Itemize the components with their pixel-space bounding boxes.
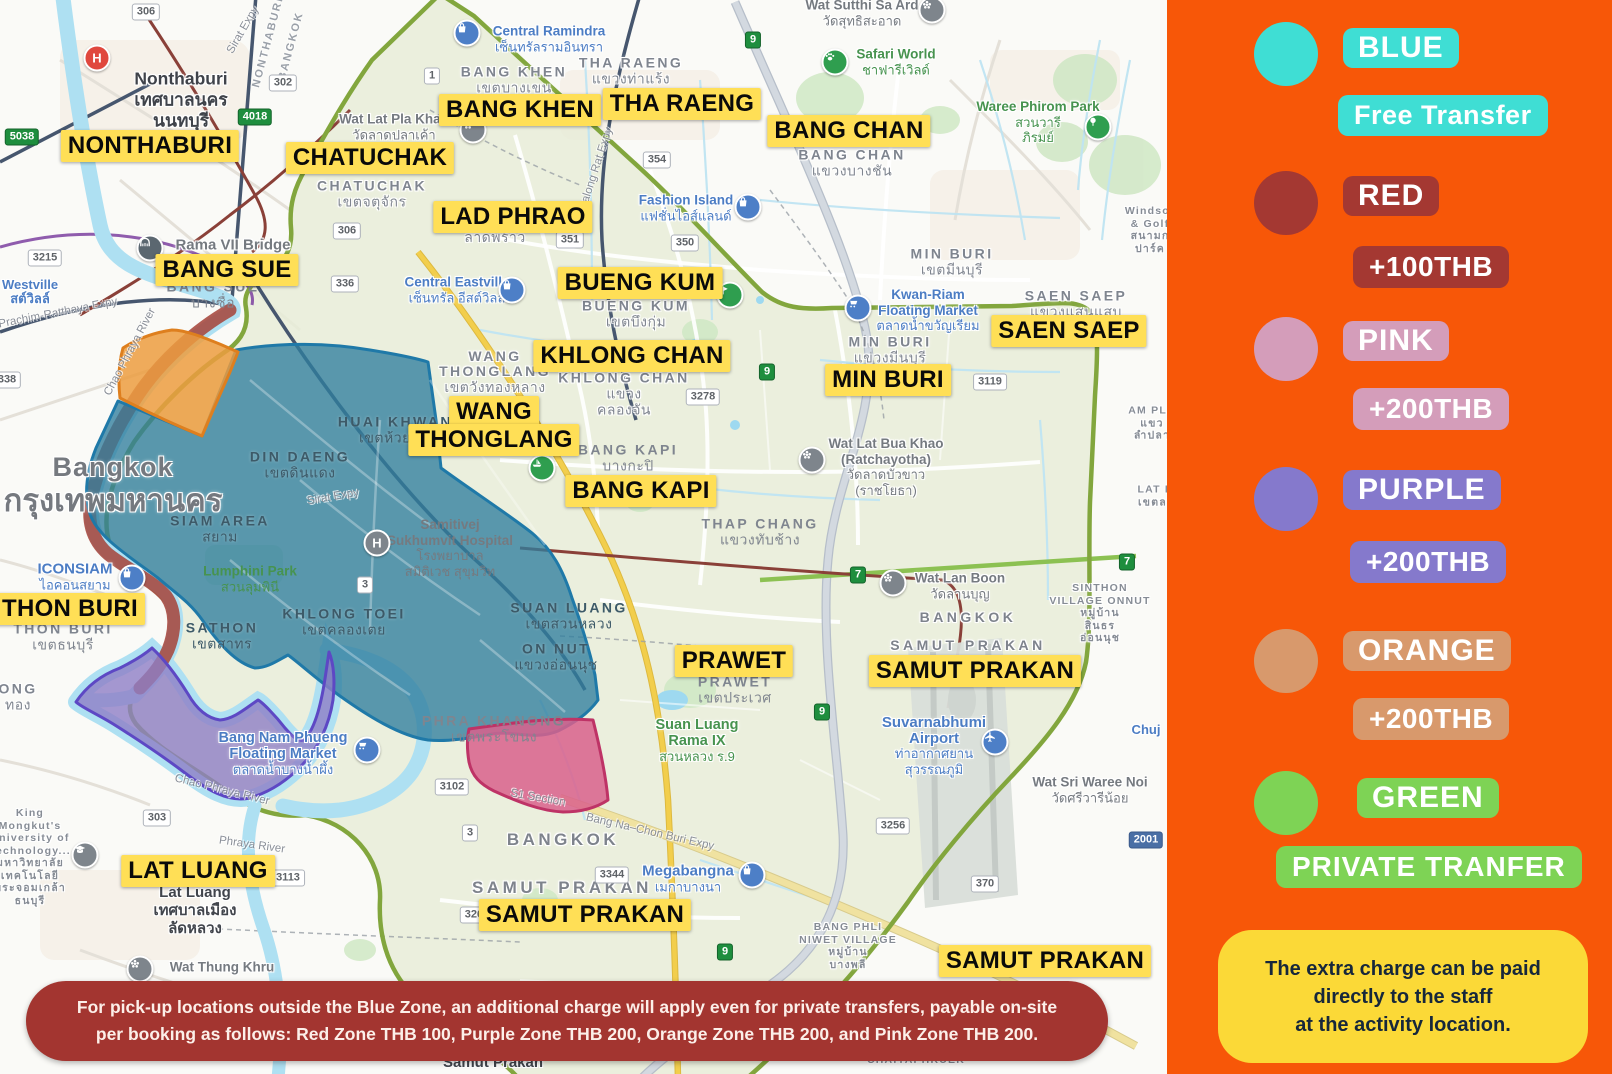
village-label-bang-phli: BANG PHLINIWET VILLAGEหมู่บ้านบางพลี	[799, 921, 897, 971]
park-tree-icon	[1085, 114, 1112, 141]
route-badge: 3215	[28, 250, 62, 267]
route-badge: 2001	[1129, 832, 1163, 849]
legend-swatch-blue	[1254, 22, 1318, 86]
temple-icon	[127, 956, 154, 983]
boat-icon	[529, 455, 556, 482]
temple-icon	[799, 447, 826, 474]
route-badge: 9	[717, 944, 733, 961]
zone-label: SAMUT PRAKAN	[939, 945, 1151, 977]
route-badge: 3119	[973, 374, 1007, 391]
route-badge: 9	[745, 32, 761, 49]
route-badge: 336	[331, 276, 359, 293]
temple-icon	[880, 570, 907, 597]
extra-charge-note: The extra charge can be paid directly to…	[1218, 930, 1588, 1063]
zone-label: SAMUT PRAKAN	[869, 655, 1081, 687]
zone-label: KHLONG CHAN	[533, 340, 730, 372]
poi-label: Wat Sutthi Sa Ardวัดสุทธิสะอาด	[806, 0, 919, 29]
legend-fee-orange: +200THB	[1353, 698, 1509, 740]
route-badge: 3	[357, 577, 373, 594]
route-badge: 306	[333, 223, 361, 240]
poi-label: Waree Phirom Parkสวนวารีภิรมย์	[976, 99, 1099, 146]
district-label: BANG CHANแขวงบางชัน	[798, 148, 905, 179]
shopping-bag-icon	[119, 565, 146, 592]
poi-label: Bang Nam PhuengFloating Marketตลาดน้ำบาง…	[219, 731, 348, 778]
university-icon	[72, 842, 99, 869]
poi-label: Rama VII Bridge	[175, 237, 290, 253]
route-badge: 9	[759, 364, 775, 381]
zone-label: BANG KAPI	[565, 475, 716, 507]
district-label: KHLONG TOEIเขตคลองเตย	[282, 607, 405, 638]
poi-label: ICONSIAMไอคอนสยาม	[38, 562, 113, 593]
market-cart-icon	[845, 295, 872, 322]
route-badge: 302	[269, 75, 297, 92]
route-badge: 3102	[435, 779, 469, 796]
hospital-icon: H	[364, 530, 391, 557]
route-badge: 354	[643, 152, 671, 169]
poi-label: Lumphini Parkสวนลุมพินี	[203, 564, 297, 595]
district-label-partial: AM PLAแขวลำปลา	[1128, 404, 1167, 442]
route-badge: 9	[814, 704, 830, 721]
district-label-khlong-chan: KHLONG CHANแขวงคลองจัน	[558, 371, 689, 418]
zone-label: BANG KHEN	[439, 94, 601, 126]
legend-name-purple: PURPLE	[1343, 470, 1501, 510]
route-badge: 351	[556, 232, 584, 249]
province-label: BANGKOK	[507, 830, 619, 850]
legend-fee-blue: Free Transfer	[1338, 95, 1548, 136]
district-label: THAP CHANGแขวงทับช้าง	[701, 517, 818, 548]
district-label: THA RAENGแขวงท่าแร้ง	[579, 56, 683, 87]
town-label-nonthaburi: Nonthaburiเทศบาลนครนนทบุรี	[134, 69, 227, 132]
district-label: BUENG KUMเขตบึงกุ่ม	[582, 299, 690, 330]
legend-swatch-green	[1254, 771, 1318, 835]
legend-fee-purple: +200THB	[1350, 541, 1506, 583]
legend-panel: BLUE Free Transfer RED +100THB PINK +200…	[1167, 0, 1612, 1074]
zone-label: MIN BURI	[825, 364, 951, 396]
zone-label: BANG CHAN	[767, 115, 930, 147]
legend-name-green: GREEN	[1357, 778, 1499, 818]
poi-label-windsor-golf: Windsor& Golfสนามกปาร์ค	[1125, 205, 1167, 255]
zone-label: SAEN SAEP	[991, 315, 1146, 347]
district-label: BANG KAPIบางกะปิ	[578, 443, 678, 474]
legend-fee-red: +100THB	[1353, 246, 1509, 288]
bangkok-transfer-zone-infographic: Chao Phraya River Chao Phraya River Phra…	[0, 0, 1612, 1074]
district-label: SUAN LUANGเขตสวนหลวง	[510, 601, 627, 632]
province-label: SAMUT PRAKAN	[890, 637, 1046, 653]
route-badge: 303	[143, 810, 171, 827]
market-cart-icon	[354, 737, 381, 764]
district-label: CHATUCHAKเขตจตุจักร	[317, 179, 427, 210]
legend-swatch-purple	[1254, 467, 1318, 531]
legend-swatch-pink	[1254, 317, 1318, 381]
poi-label-partial: Chuj	[1132, 723, 1161, 737]
surcharge-banner: For pick-up locations outside the Blue Z…	[26, 981, 1108, 1061]
poi-label: Fashion Islandแฟชั่นไอส์แลนด์	[639, 193, 734, 224]
route-badge: 1	[424, 68, 440, 85]
route-badge: 3	[462, 825, 478, 842]
poi-label: Wat Lat Bua Khao(Ratchayotha)วัดลาดบัวขา…	[828, 436, 943, 498]
district-label: DIN DAENGเขตดินแดง	[250, 450, 350, 481]
shopping-bag-icon	[735, 194, 762, 221]
district-label: MIN BURIเขตมีนบุรี	[911, 247, 994, 278]
route-badge: 5038	[5, 129, 39, 146]
poi-label: Central Eastvilleเซ็นทรัล อีสต์วิลล์	[404, 275, 509, 306]
poi-label: Suan LuangRama IXสวนหลวง ร.9	[656, 718, 739, 765]
zone-label: SAMUT PRAKAN	[479, 899, 691, 931]
district-label-partial: LAT KRเขตลาด	[1138, 484, 1167, 509]
poi-label-westville: Westvilleสต์วิลล์	[2, 278, 58, 306]
legend-swatch-red	[1254, 171, 1318, 235]
district-label-partial: ONGทอง	[0, 682, 38, 713]
map-canvas: Chao Phraya River Chao Phraya River Phra…	[0, 0, 1167, 1074]
district-label: THON BURIเขตธนบุรี	[13, 622, 112, 653]
poi-label: Wat Sri Waree Noiวัดศรีวารีน้อย	[1032, 775, 1147, 806]
hospital-icon: H	[84, 45, 111, 72]
district-label: BANG KHENเขตบางเขน	[461, 65, 567, 96]
shopping-bag-icon	[454, 20, 481, 47]
legend-fee-pink: +200THB	[1353, 388, 1509, 430]
route-badge: 3113	[271, 870, 305, 887]
town-label-lat-luang: Lat Luangเทศบาลเมืองลัดหลวง	[153, 884, 236, 938]
poi-label: Central Ramindraเซ็นทรัลรามอินทรา	[493, 24, 606, 55]
legend-name-pink: PINK	[1343, 321, 1449, 361]
legend-name-orange: ORANGE	[1343, 631, 1511, 671]
route-badge: 306	[132, 4, 160, 21]
zone-label: THA RAENG	[603, 88, 761, 120]
route-badge: 4018	[238, 109, 272, 126]
shopping-bag-icon	[739, 862, 766, 889]
route-badge: 370	[971, 876, 999, 893]
shopping-bag-icon	[499, 277, 526, 304]
paw-icon	[822, 49, 849, 76]
province-label: BANGKOK	[920, 609, 1017, 625]
zone-label: PRAWET	[675, 645, 793, 677]
route-badge: 3344	[595, 867, 629, 884]
route-badge: 7	[850, 567, 866, 584]
route-badge: 7	[1119, 554, 1135, 571]
zone-label: BANG SUE	[155, 254, 298, 286]
legend-name-blue: BLUE	[1343, 28, 1459, 68]
route-badge: 338	[0, 372, 21, 389]
district-label: SATHONเขตสาทร	[186, 621, 258, 652]
district-label: MIN BURIแขวงมีนบุรี	[849, 335, 932, 366]
airport-plane-icon	[982, 729, 1009, 756]
legend-name-red: RED	[1343, 176, 1439, 216]
zone-label: THONGLANG	[408, 424, 579, 456]
district-label: SIAM AREAสยาม	[170, 514, 270, 545]
poi-label: SamitivejSukhumvit Hospitalโรงพยาบาลสมิต…	[387, 517, 513, 579]
poi-label: Wat Lan Boonวัดลานบุญ	[915, 571, 1005, 602]
district-label: PRAWETเขตประเวศ	[698, 675, 772, 706]
district-label: PHRA KHANONGเขตพระโขนง	[422, 714, 566, 745]
zone-label: LAD PHRAO	[433, 201, 592, 233]
route-badge: 350	[671, 235, 699, 252]
poi-label: Safari Worldชาฟารีเวิลด์	[856, 47, 935, 78]
route-badge: 3256	[876, 818, 910, 835]
village-label-sinthon: SINTHONVILLAGE ONNUTหมู่บ้านสินธรอ่อนนุช	[1049, 582, 1150, 645]
legend-swatch-orange	[1254, 629, 1318, 693]
poi-label: Wat Lat Pla Khaoวัดลาดปลาเค้า	[339, 112, 449, 143]
zone-label: NONTHABURI	[61, 130, 239, 162]
legend-fee-green: PRIVATE TRANFER	[1276, 846, 1582, 888]
poi-label: Wat Thung Khru	[170, 959, 274, 975]
city-label-bangkok: Bangkokกรุงเทพมหานคร	[4, 451, 223, 517]
zone-label: CHATUCHAK	[286, 142, 454, 174]
poi-label: Megabangnaเมกาบางนา	[642, 864, 734, 895]
district-label: ON NUTแขวงอ่อนนุช	[514, 642, 597, 673]
poi-label: Kwan-RiamFloating Marketตลาดน้ำขวัญเรียม	[876, 287, 979, 334]
zone-label: LAT LUANG	[121, 855, 275, 887]
zone-label: THON BURI	[0, 593, 145, 625]
zone-label: BUENG KUM	[558, 267, 723, 299]
poi-label: SuvarnabhumiAirportท่าอากาศยานสุวรรณภูมิ	[882, 715, 986, 777]
route-badge: 3278	[686, 389, 720, 406]
